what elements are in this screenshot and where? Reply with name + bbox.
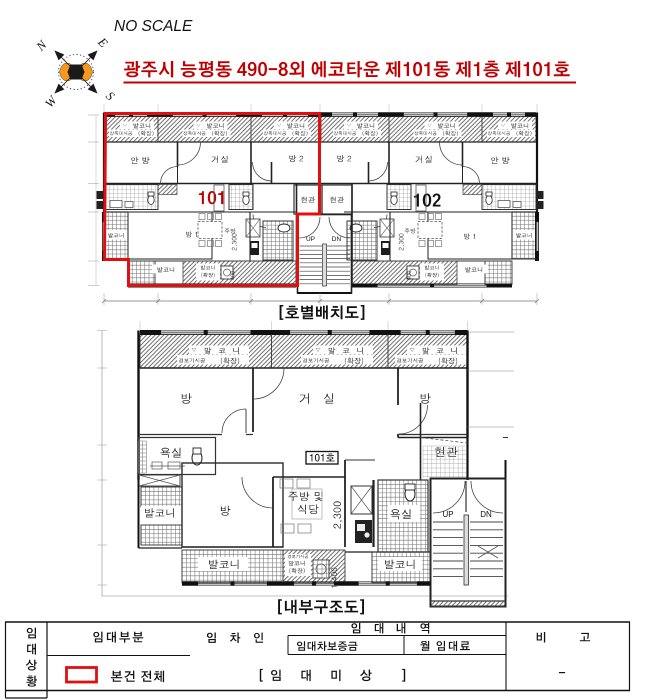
svg-text:UP: UP xyxy=(306,236,315,243)
svg-text:DN: DN xyxy=(480,510,492,519)
svg-text:NO SCALE: NO SCALE xyxy=(114,18,193,35)
svg-text:DN: DN xyxy=(332,236,342,243)
svg-text:UP: UP xyxy=(442,510,453,519)
